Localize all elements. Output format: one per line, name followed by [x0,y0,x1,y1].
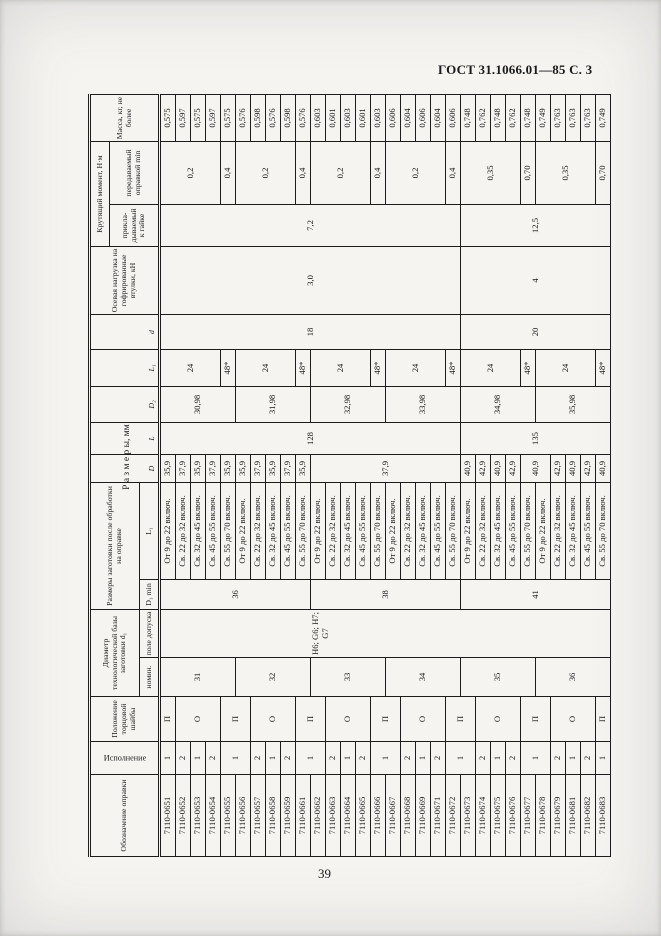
table-cell: 2 [401,742,416,775]
table-cell: Св. 22 до 32 включ. [551,482,566,579]
table-cell: 0,4 [296,141,311,204]
table-cell: 38 [311,579,461,609]
table-cell: 0,598 [281,94,296,141]
table-cell: Св. 32 до 45 включ. [341,482,356,579]
table-cell: Св. 55 до 70 включ. [371,482,386,579]
table-cell: Св. 45 до 55 включ. [581,482,596,579]
table-cell: П [596,697,611,742]
table-cell: 1 [491,742,506,775]
table-cell: 40,9 [461,454,476,482]
table-cell: Св. 45 до 55 включ. [356,482,371,579]
designation-cell: 7110-0671 [431,775,446,857]
table-cell: 1 [521,742,551,775]
designation-cell: 7110-0674 [476,775,491,857]
table-cell: 42,9 [551,454,566,482]
table-cell: Св. 55 до 70 включ. [296,482,311,579]
table-cell: 7,2 [160,204,461,246]
table-cell: П [221,697,251,742]
table-cell: Св. 32 до 45 включ. [266,482,281,579]
table-cell: О [551,697,596,742]
designation-cell: 7110-0664 [341,775,356,857]
table-cell: 0,575 [160,94,176,141]
table-cell: 2 [506,742,521,775]
table-cell: Св. 45 до 55 включ. [206,482,221,579]
table-cell: 2 [431,742,446,775]
table-cell: Н6; G6; Н7; G7 [160,609,611,657]
table-cell: 0,748 [461,94,476,141]
table-cell: 0,748 [521,94,536,141]
table-cell: О [401,697,446,742]
table-cell: 42,9 [506,454,521,482]
table-cell: 0,2 [160,141,221,204]
table-cell: 0,597 [176,94,191,141]
table-cell: 41 [461,579,611,609]
col-header-L1: L₁ [90,349,160,386]
table-cell: 2 [581,742,596,775]
table-cell: 0,597 [206,94,221,141]
table-cell: 0,576 [266,94,281,141]
table-cell: 0,601 [356,94,371,141]
table-cell: 36 [160,579,311,609]
table-cell: От 9 до 22 включ. [536,482,551,579]
table-cell: 24 [311,349,371,386]
designation-cell: 7110-0663 [326,775,341,857]
table-cell: 1 [160,742,176,775]
execution-label: Исполнение [103,753,145,762]
designation-cell: 7110-0654 [206,775,221,857]
table-cell: 37,9 [311,454,461,482]
designation-cell: 7110-0656 [236,775,251,857]
table-cell: 0,603 [341,94,356,141]
table-cell: Св. 22 до 32 включ. [401,482,416,579]
table-title: Р а з м е р ы, мм [122,397,132,517]
table-cell: 30,98 [160,386,236,422]
table-cell: 0,2 [386,141,446,204]
designation-cell: 7110-0652 [176,775,191,857]
designation-cell: 7110-0653 [191,775,206,857]
table-cell: Св. 32 до 45 включ. [416,482,431,579]
designation-cell: 7110-0665 [356,775,371,857]
table-cell: 0,606 [386,94,401,141]
designation-cell: 7110-0666 [371,775,386,857]
table-cell: 37,9 [281,454,296,482]
table-cell: Св. 55 до 70 включ. [521,482,536,579]
table-cell: 2 [476,742,491,775]
table-cell: 34 [386,658,461,697]
table-cell: 20 [461,314,611,349]
table-cell: 1 [266,742,281,775]
table-cell: 24 [160,349,221,386]
table-cell: 48* [596,349,611,386]
table-cell: 2 [326,742,341,775]
table-cell: 40,9 [521,454,551,482]
col-header-d: d [90,314,160,349]
table-cell: 42,9 [581,454,596,482]
table-cell: П [521,697,551,742]
table-cell: 2 [551,742,566,775]
table-cell: 0,4 [446,141,461,204]
table-cell: 1 [341,742,356,775]
table-cell: От 9 до 22 включ. [311,482,326,579]
designation-cell: 7110-0657 [251,775,266,857]
table-cell: Св. 22 до 32 включ. [176,482,191,579]
table-row: 7110-06511П31Н6; G6; Н7; G736От 9 до 22 … [160,94,176,856]
table-cell: 0,35 [461,141,521,204]
table-cell: Св. 32 до 45 включ. [491,482,506,579]
table-cell: 0,2 [311,141,371,204]
table-cell: 35,9 [191,454,206,482]
designation-cell: 7110-0677 [521,775,536,857]
designation-cell: 7110-0668 [401,775,416,857]
designation-cell: 7110-0683 [596,775,611,857]
table-cell: 0,70 [521,141,536,204]
table-cell: 35,98 [536,386,611,422]
table-cell: 40,9 [491,454,506,482]
table-cell: 35,9 [296,454,311,482]
table-cell: 2 [206,742,221,775]
col-header-d1min: D₁ min [140,579,160,609]
table-cell: 2 [356,742,371,775]
table-cell: 0,749 [536,94,551,141]
table-cell: 48* [296,349,311,386]
table-cell: 12,5 [461,204,611,246]
table-cell: 37,9 [206,454,221,482]
table-cell: 35,9 [221,454,236,482]
table-cell: 0,762 [506,94,521,141]
table-cell: 0,70 [596,141,611,204]
designation-cell: 7110-0678 [536,775,551,857]
table-cell: 40,9 [596,454,611,482]
col-header-washer-position: Положение торцовой шайбы [90,697,160,742]
table-cell: 37,9 [176,454,191,482]
table-cell: 37,9 [251,454,266,482]
table-cell: 3,0 [160,246,461,314]
table-cell: 2 [176,742,191,775]
table-cell: Св. 55 до 70 включ. [221,482,236,579]
designation-cell: 7110-0679 [551,775,566,857]
document-page: ГОСТ 31.1066.01—85 С. 3 Р а з м е р ы, м… [0,0,661,936]
table-cell: 48* [221,349,236,386]
table-cell: 2 [281,742,296,775]
table-cell: От 9 до 22 включ. [386,482,401,579]
table-cell: 0,4 [221,141,236,204]
designation-cell: 7110-0655 [221,775,236,857]
designation-cell: 7110-0676 [506,775,521,857]
table-cell: П [296,697,326,742]
rotated-table-area: Р а з м е р ы, мм Обозначение оправки Ис… [88,95,580,857]
table-cell: Св. 32 до 45 включ. [566,482,581,579]
table-cell: 48* [446,349,461,386]
table-cell: 0,606 [446,94,461,141]
table-cell: 0,575 [191,94,206,141]
table-cell: 24 [536,349,596,386]
col-header-execution: Исполнение [90,742,160,775]
table-cell: 1 [416,742,431,775]
table-cell: 48* [521,349,536,386]
table-cell: От 9 до 22 включ. [461,482,476,579]
table-cell: Св. 55 до 70 включ. [596,482,611,579]
table-cell: 0,762 [476,94,491,141]
col-header-torque-applied: прикла­дывае­мый к гайке [110,204,160,246]
table-cell: 4 [461,246,611,314]
table-cell: 34,98 [461,386,536,422]
col-header-l1range: L₁ [140,482,160,579]
table-cell: 0,748 [491,94,506,141]
designation-cell: 7110-0658 [266,775,281,857]
designation-cell: 7110-0681 [566,775,581,857]
table-cell: Св. 22 до 32 включ. [476,482,491,579]
col-header-base-diameter: Диаметр технологической базы заготовки d… [90,609,140,696]
table-cell: О [326,697,371,742]
table-cell: 18 [160,314,461,349]
table-cell: Св. 22 до 32 включ. [251,482,266,579]
table-cell: 42,9 [476,454,491,482]
col-header-tolerance: поле допуска [140,609,160,657]
table-cell: 0,2 [236,141,296,204]
col-header-mass: Масса, кг, не более [90,94,160,141]
table-cell: 32 [236,658,311,697]
table-cell: П [371,697,401,742]
table-cell: 1 [191,742,206,775]
table-cell: 0,604 [431,94,446,141]
table-cell: 0,763 [566,94,581,141]
table-cell: 1 [221,742,251,775]
table-cell: От 9 до 22 включ. [160,482,176,579]
table-cell: 0,603 [311,94,326,141]
table-cell: Св. 32 до 45 включ. [191,482,206,579]
table-cell: Св. 45 до 55 включ. [431,482,446,579]
table-cell: 1 [296,742,326,775]
table-cell: 35 [461,658,536,697]
table-cell: Св. 45 до 55 включ. [281,482,296,579]
table-cell: 0,598 [251,94,266,141]
table-cell: 1 [596,742,611,775]
designation-cell: 7110-0661 [296,775,311,857]
table-cell: 24 [236,349,296,386]
table-cell: 0,606 [416,94,431,141]
designation-cell: 7110-0662 [311,775,326,857]
table-cell: 0,4 [371,141,386,204]
designation-cell: 7110-0675 [491,775,506,857]
table-cell: 0,763 [551,94,566,141]
table-cell: 128 [160,422,461,454]
designation-cell: 7110-0669 [416,775,431,857]
table-cell: 35,9 [266,454,281,482]
table-cell: О [251,697,296,742]
table-cell: 48* [371,349,386,386]
col-header-axial-load: Осевая нагрузка на гофриро­ванные втулки… [90,246,160,314]
table-cell: 1 [566,742,581,775]
table-cell: 2 [251,742,266,775]
table-cell: 33 [311,658,386,697]
designation-cell: 7110-0672 [446,775,461,857]
table-cell: О [476,697,521,742]
designation-cell: 7110-0682 [581,775,596,857]
table-cell: П [446,697,476,742]
doc-header: ГОСТ 31.1066.01—85 С. 3 [438,62,618,78]
table-cell: 35,9 [160,454,176,482]
table-cell: 0,575 [221,94,236,141]
spec-table: Обозначение оправки Исполнение Положение… [88,94,611,857]
table-cell: П [160,697,176,742]
table-cell: Св. 45 до 55 включ. [506,482,521,579]
table-cell: 0,576 [296,94,311,141]
table-cell: 0,603 [371,94,386,141]
col-header-torque-transmitted: передавае­мый оправкой min [110,141,160,204]
header-row-1: Обозначение оправки Исполнение Положение… [90,94,110,856]
table-cell: 35,9 [236,454,251,482]
col-header-blank-dims: Размеры заготовки после обработки на опр… [90,482,140,609]
table-cell: 1 [446,742,476,775]
table-cell: 1 [371,742,401,775]
col-header-designation: Обозначение оправки [90,775,160,857]
table-cell: 0,601 [326,94,341,141]
table-cell: 0,763 [581,94,596,141]
table-cell: Св. 55 до 70 включ. [446,482,461,579]
table-cell: 0,576 [236,94,251,141]
table-cell: 135 [461,422,611,454]
table-cell: 24 [461,349,521,386]
table-cell: От 9 до 22 включ. [236,482,251,579]
designation-cell: 7110-0667 [386,775,401,857]
table-cell: 32,98 [311,386,386,422]
col-header-nominal: номин. [140,658,160,697]
table-cell: 40,9 [566,454,581,482]
table-cell: 36 [536,658,611,697]
table-cell: 24 [386,349,446,386]
table-cell: 0,604 [401,94,416,141]
table-cell: 33,98 [386,386,461,422]
designation-cell: 7110-0659 [281,775,296,857]
table-cell: Св. 22 до 32 включ. [326,482,341,579]
table-cell: 31 [160,658,236,697]
table-cell: 0,749 [596,94,611,141]
table-cell: 0,35 [536,141,596,204]
col-header-torque: Крутящий момент, Н·м [90,141,110,246]
table-body: 7110-06511П31Н6; G6; Н7; G736От 9 до 22 … [160,94,611,856]
page-number: 39 [318,866,331,882]
table-cell: О [176,697,221,742]
designation-cell: 7110-0673 [461,775,476,857]
table-cell: 31,98 [236,386,311,422]
designation-cell: 7110-0651 [160,775,176,857]
